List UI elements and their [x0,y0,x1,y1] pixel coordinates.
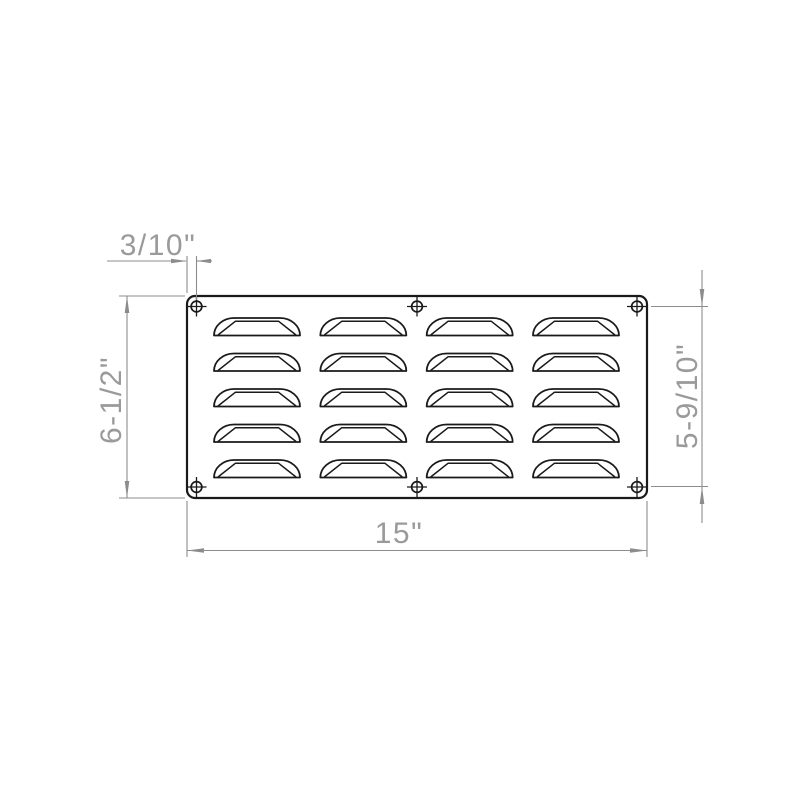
louver-slot [320,460,406,478]
dim-label-overall-height: 6-1/2" [95,356,128,444]
louver-slot [320,318,406,336]
dimension-hole-spacing-vertical: 5-9/10" [651,270,708,523]
louver-slot [427,318,513,336]
louver-slot [427,425,513,443]
louver-slot [214,425,300,443]
dimension-overall-width: 15" [187,501,647,557]
louver-slot [320,389,406,407]
dimension-hole-edge-offset: 3/10" [107,229,212,300]
louver-slot [533,460,619,478]
dimension-overall-height: 6-1/2" [95,296,185,498]
louver-slot [214,318,300,336]
louver-slot [320,354,406,372]
drawing-canvas: 3/10" 6-1/2" 5-9/10" 15" [0,0,800,800]
louver-slot [214,354,300,372]
louver-slot [427,389,513,407]
louver-slot [533,425,619,443]
vent-panel-technical-drawing: 3/10" 6-1/2" 5-9/10" 15" [0,0,800,800]
louver-slot [320,425,406,443]
dim-label-hole-spacing-vertical: 5-9/10" [671,343,704,449]
louver-slot [533,318,619,336]
dim-label-hole-edge-offset: 3/10" [120,229,197,262]
louver-slot [533,354,619,372]
louver-slot [427,354,513,372]
louver-slot [533,389,619,407]
louver-slot [427,460,513,478]
dim-label-overall-width: 15" [375,517,424,550]
louver-slot [214,460,300,478]
louver-slot [214,389,300,407]
